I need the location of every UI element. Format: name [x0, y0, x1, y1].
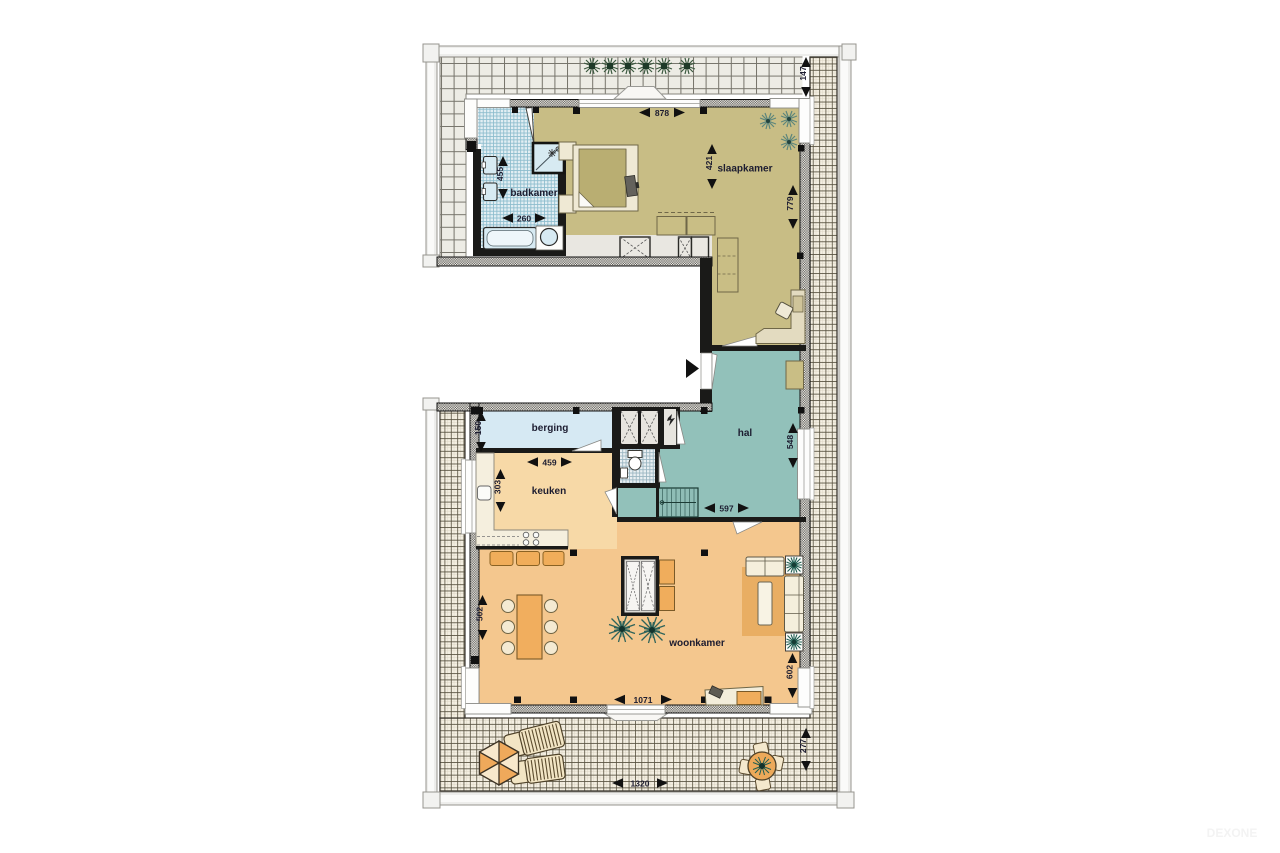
svg-text:260: 260 [517, 214, 531, 224]
svg-text:277: 277 [798, 739, 808, 753]
svg-text:hal: hal [738, 428, 753, 439]
svg-text:779: 779 [785, 196, 795, 210]
svg-text:147: 147 [798, 66, 808, 80]
svg-text:502: 502 [475, 607, 485, 621]
svg-text:keuken: keuken [532, 486, 566, 497]
svg-text:548: 548 [785, 435, 795, 449]
svg-text:DEXONE: DEXONE [1207, 826, 1258, 840]
svg-text:badkamer: badkamer [510, 188, 557, 199]
svg-text:303: 303 [493, 480, 503, 494]
svg-text:597: 597 [719, 504, 733, 514]
svg-text:berging: berging [532, 423, 569, 434]
svg-text:1071: 1071 [634, 695, 653, 705]
svg-text:602: 602 [785, 665, 795, 679]
svg-text:878: 878 [655, 108, 669, 118]
svg-text:421: 421 [704, 156, 714, 170]
svg-text:1320: 1320 [631, 779, 650, 789]
svg-text:slaapkamer: slaapkamer [717, 164, 772, 175]
svg-text:459: 459 [542, 458, 556, 468]
svg-text:woonkamer: woonkamer [668, 638, 725, 649]
svg-text:150: 150 [473, 421, 483, 435]
svg-text:455: 455 [495, 167, 505, 181]
